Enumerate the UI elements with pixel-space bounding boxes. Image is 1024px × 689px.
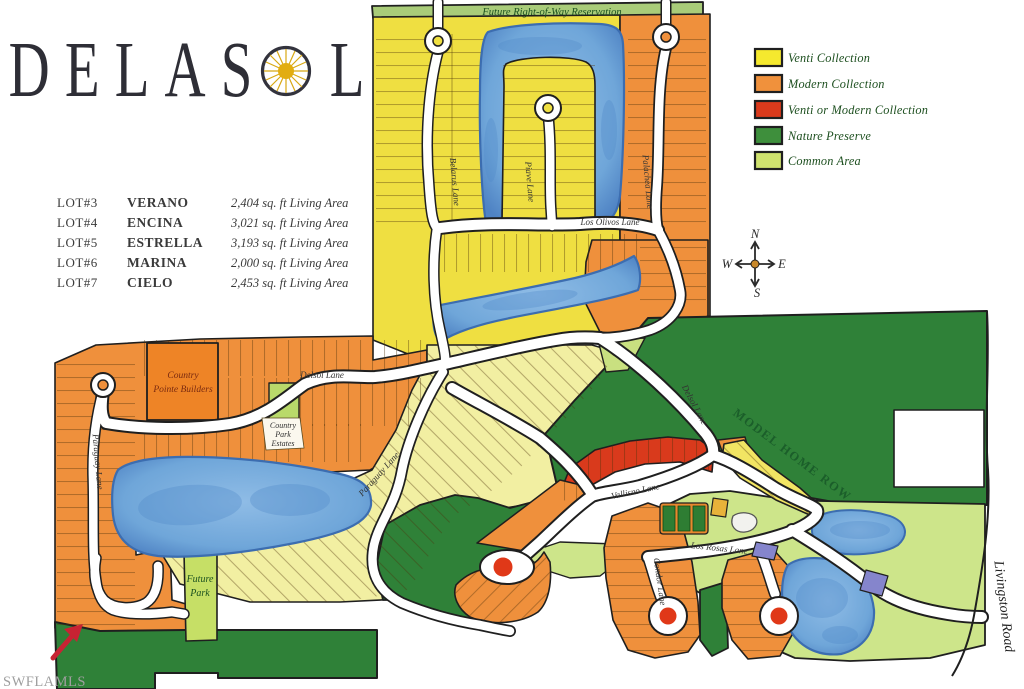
svg-text:Park: Park [274, 430, 291, 439]
svg-text:3,021 sq. ft Living Area: 3,021 sq. ft Living Area [230, 216, 348, 230]
svg-text:SWFLAMLS: SWFLAMLS [3, 674, 86, 689]
svg-text:MARINA: MARINA [127, 255, 187, 270]
svg-text:Nature Preserve: Nature Preserve [787, 129, 871, 143]
svg-text:ENCINA: ENCINA [127, 215, 183, 230]
svg-text:2,404 sq. ft Living Area: 2,404 sq. ft Living Area [231, 196, 348, 210]
svg-text:Park: Park [189, 588, 210, 599]
svg-text:Modern Collection: Modern Collection [787, 77, 885, 91]
svg-text:CIELO: CIELO [127, 275, 173, 290]
svg-text:Venti Collection: Venti Collection [788, 51, 870, 65]
svg-text:VERANO: VERANO [127, 195, 189, 210]
svg-text:DELAS: DELAS [9, 26, 268, 113]
svg-text:LOT#4: LOT#4 [57, 215, 98, 230]
svg-text:E: E [777, 257, 786, 271]
svg-text:ESTRELLA: ESTRELLA [127, 235, 203, 250]
svg-text:Future Right-of-Way Reservatio: Future Right-of-Way Reservation [481, 7, 621, 18]
svg-text:LOT#6: LOT#6 [57, 255, 98, 270]
svg-text:Estates: Estates [270, 439, 294, 448]
svg-text:Common Area: Common Area [788, 154, 861, 168]
svg-text:LOT#5: LOT#5 [57, 235, 98, 250]
svg-text:N: N [750, 227, 760, 241]
svg-text:LOT#7: LOT#7 [57, 275, 98, 290]
svg-text:W: W [722, 257, 734, 271]
svg-text:LOT#3: LOT#3 [57, 195, 98, 210]
svg-text:Pointe Builders: Pointe Builders [152, 385, 213, 395]
svg-text:Venti or Modern Collection: Venti or Modern Collection [788, 103, 928, 117]
svg-text:Delsol Lane: Delsol Lane [299, 370, 344, 380]
svg-text:Country: Country [167, 371, 199, 381]
svg-text:S: S [754, 286, 761, 300]
svg-text:Future: Future [186, 574, 214, 585]
svg-text:3,193 sq. ft Living Area: 3,193 sq. ft Living Area [230, 236, 348, 250]
svg-text:Country: Country [270, 421, 297, 430]
svg-text:2,000 sq. ft Living Area: 2,000 sq. ft Living Area [231, 256, 348, 270]
svg-text:2,453 sq. ft Living Area: 2,453 sq. ft Living Area [231, 276, 348, 290]
svg-text:L: L [330, 26, 365, 113]
svg-text:Los Olivos Lane: Los Olivos Lane [579, 217, 639, 227]
